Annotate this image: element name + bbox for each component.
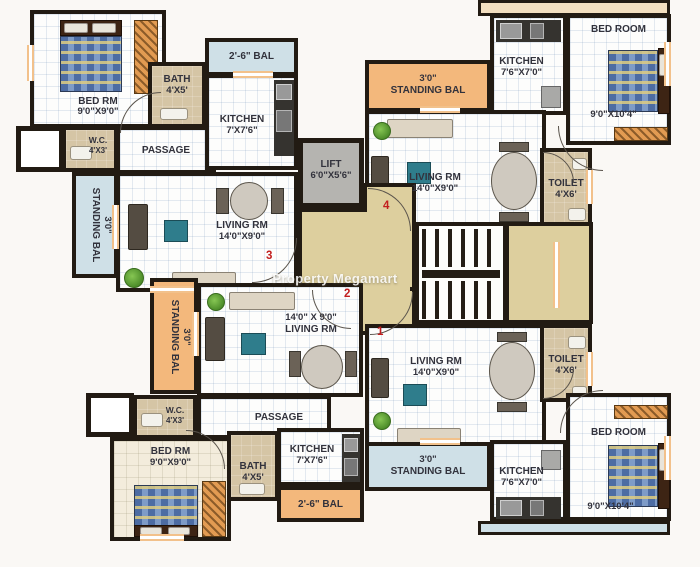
room-dims: 7'X7'6" bbox=[281, 456, 343, 467]
room-label: 2'-6" BAL bbox=[209, 51, 294, 63]
bed bbox=[608, 445, 658, 507]
coffee-table bbox=[241, 333, 266, 355]
sink bbox=[344, 438, 358, 452]
room-name: KITCHEN bbox=[494, 466, 549, 478]
dining-chair bbox=[497, 332, 527, 342]
stove bbox=[500, 23, 522, 39]
plant bbox=[373, 122, 391, 140]
lift-label: LIFT 6'0"X5'6" bbox=[303, 159, 359, 181]
watermark: Property Megamart bbox=[240, 271, 430, 286]
sofa bbox=[387, 119, 453, 138]
room-name: STANDING BAL bbox=[369, 466, 487, 478]
coffee-table bbox=[403, 384, 427, 406]
sofa bbox=[128, 204, 148, 250]
room-name: PASSAGE bbox=[120, 145, 212, 157]
room-name: BATH bbox=[152, 74, 202, 86]
room-dims: 7'X7'6" bbox=[209, 126, 275, 137]
flat2-kitchen: KITCHEN 7'X7'6" bbox=[277, 428, 364, 486]
room-dims: 14'0"X9'0" bbox=[381, 368, 491, 379]
pillow bbox=[92, 23, 116, 33]
door-lintel bbox=[192, 312, 199, 356]
window bbox=[140, 534, 184, 541]
dining-chair bbox=[499, 212, 529, 222]
wardrobe bbox=[202, 481, 226, 537]
dining-table bbox=[489, 342, 535, 400]
sink bbox=[276, 84, 292, 100]
bed bbox=[60, 36, 122, 92]
dining-chair bbox=[216, 188, 229, 214]
flat3-number: 3 bbox=[266, 250, 272, 262]
stair-rail bbox=[422, 270, 500, 278]
room-dims: 4'X6' bbox=[544, 190, 588, 201]
room-dims: 4'X3' bbox=[157, 416, 193, 425]
bath-fixture bbox=[160, 108, 188, 120]
door-lintel bbox=[420, 106, 460, 113]
wardrobe bbox=[614, 127, 668, 141]
stair-flight-upper bbox=[422, 229, 500, 267]
room-name: STANDING BAL bbox=[369, 85, 487, 97]
flat2-standing-balcony: 3'0" STANDING BAL bbox=[150, 278, 198, 394]
flat1-kitchen: KITCHEN 7'6"X7'0" bbox=[490, 440, 567, 521]
room-dims: 3'0" bbox=[101, 176, 112, 274]
flat2-duct-void bbox=[86, 393, 134, 437]
room-name: KITCHEN bbox=[494, 56, 549, 68]
room-label: BATH 4'X5' bbox=[231, 461, 275, 483]
flat3-duct-void bbox=[16, 126, 64, 172]
room-name: PASSAGE bbox=[231, 412, 327, 424]
room-name: KITCHEN bbox=[281, 444, 343, 456]
door-lintel bbox=[233, 71, 273, 78]
room-label: 3'0" STANDING BAL bbox=[369, 74, 487, 96]
room-label: W.C. 4'X3' bbox=[157, 406, 193, 425]
bed bbox=[608, 50, 658, 112]
room-name: STANDING BAL bbox=[90, 176, 102, 274]
room-dims: 14'0"X9'0" bbox=[379, 184, 491, 195]
fridge bbox=[541, 86, 561, 108]
flat3-wc: W.C. 4'X3' bbox=[62, 126, 118, 172]
room-label: PASSAGE bbox=[120, 145, 212, 157]
room-name: LIVING RM bbox=[379, 172, 491, 184]
room-label: 2'-6" BAL bbox=[281, 499, 360, 511]
flat1-standing-balcony: 3'0" STANDING BAL bbox=[365, 442, 491, 491]
room-label: KITCHEN 7'6"X7'0" bbox=[494, 466, 549, 488]
bath-fixture bbox=[239, 483, 265, 495]
dining-chair bbox=[497, 402, 527, 412]
dining-chair bbox=[289, 351, 301, 377]
window bbox=[586, 170, 593, 204]
flat1-number: 1 bbox=[377, 326, 383, 338]
room-label: 3'0" STANDING BAL bbox=[369, 455, 487, 477]
dining-table bbox=[301, 345, 343, 389]
flat3-passage: PASSAGE bbox=[116, 126, 216, 174]
flat4-kitchen: KITCHEN 7'6"X7'0" bbox=[490, 14, 567, 115]
room-label: LIVING RM 14'0"X9'0" bbox=[381, 356, 491, 378]
stove bbox=[500, 500, 522, 516]
plant bbox=[373, 412, 391, 430]
flat4-number: 4 bbox=[383, 200, 389, 212]
toilet-pot bbox=[568, 208, 586, 221]
lift-name: LIFT bbox=[303, 159, 359, 171]
dining-table bbox=[230, 182, 268, 220]
room-name: BATH bbox=[231, 461, 275, 473]
room-dims: 7'6"X7'0" bbox=[494, 478, 549, 489]
dining-chair bbox=[499, 142, 529, 152]
room-name: 2'-6" BAL bbox=[209, 51, 294, 63]
stair-flight-lower bbox=[422, 281, 500, 319]
room-dims: 4'X3' bbox=[82, 146, 114, 155]
room-label: W.C. 4'X3' bbox=[82, 136, 114, 155]
flat2-number: 2 bbox=[344, 288, 350, 300]
sink bbox=[530, 500, 544, 516]
window bbox=[150, 286, 194, 293]
room-label: LIVING RM 14'0"X9'0" bbox=[379, 172, 491, 194]
room-label: KITCHEN 7'X7'6" bbox=[281, 444, 343, 466]
room-name: TOILET bbox=[544, 354, 588, 366]
window bbox=[27, 45, 34, 81]
plant bbox=[207, 293, 225, 311]
room-name: LIVING RM bbox=[182, 220, 302, 232]
flat1-living: LIVING RM 14'0"X9'0" bbox=[365, 324, 546, 450]
toilet-pot bbox=[568, 336, 586, 349]
floor-plan: BED RM 9'0"X9'0" W.C. 4'X3' BATH 4'X5' P… bbox=[0, 0, 700, 567]
lift-dims: 6'0"X5'6" bbox=[303, 171, 359, 182]
landing-door-marker bbox=[553, 242, 560, 308]
room-dims: 3'0" bbox=[369, 455, 487, 466]
room-label: 3'0" STANDING BAL bbox=[78, 176, 112, 274]
pillow bbox=[64, 23, 88, 33]
window bbox=[664, 436, 671, 480]
sofa bbox=[229, 292, 295, 310]
room-label: 3'0" STANDING BAL bbox=[157, 287, 191, 387]
room-name: W.C. bbox=[82, 136, 114, 146]
flat2-bath: BATH 4'X5' bbox=[227, 431, 279, 501]
flat3-kitchen: KITCHEN 7'X7'6" bbox=[205, 74, 298, 170]
wardrobe bbox=[614, 405, 668, 419]
room-dims: 3'0" bbox=[369, 74, 487, 85]
flat4-standing-balcony: 3'0" STANDING BAL bbox=[365, 60, 491, 112]
stove bbox=[276, 110, 292, 132]
dining-table bbox=[491, 152, 537, 210]
sofa bbox=[205, 317, 225, 361]
sink bbox=[530, 23, 544, 39]
room-name: LIVING RM bbox=[381, 356, 491, 368]
dining-chair bbox=[271, 188, 284, 214]
room-name: 2'-6" BAL bbox=[281, 499, 360, 511]
room-label: PASSAGE bbox=[231, 412, 327, 424]
stove bbox=[344, 458, 358, 476]
room-dims: 3'0" bbox=[180, 287, 191, 387]
stair-landing bbox=[505, 222, 593, 324]
bottom-chajja-band bbox=[478, 521, 670, 535]
room-name: BED ROOM bbox=[570, 24, 667, 36]
room-dims: 7'6"X7'0" bbox=[494, 68, 549, 79]
door-lintel bbox=[420, 438, 460, 445]
room-name: STANDING BAL bbox=[169, 287, 181, 387]
room-label: KITCHEN 7'X7'6" bbox=[209, 114, 275, 136]
plant bbox=[124, 268, 144, 288]
flat2-balcony: 2'-6" BAL bbox=[277, 486, 364, 522]
lift: LIFT 6'0"X5'6" bbox=[298, 138, 364, 208]
room-label: KITCHEN 7'6"X7'0" bbox=[494, 56, 549, 78]
door-lintel bbox=[112, 205, 119, 249]
room-dims: 4'X5' bbox=[231, 473, 275, 484]
room-name: W.C. bbox=[157, 406, 193, 416]
room-name: KITCHEN bbox=[209, 114, 275, 126]
bed bbox=[134, 485, 198, 527]
room-dims: 9'0"X10'4" bbox=[570, 110, 657, 121]
room-dims: 9'0"X10'4" bbox=[570, 502, 651, 513]
dining-chair bbox=[345, 351, 357, 377]
window bbox=[664, 42, 671, 86]
window bbox=[586, 352, 593, 386]
